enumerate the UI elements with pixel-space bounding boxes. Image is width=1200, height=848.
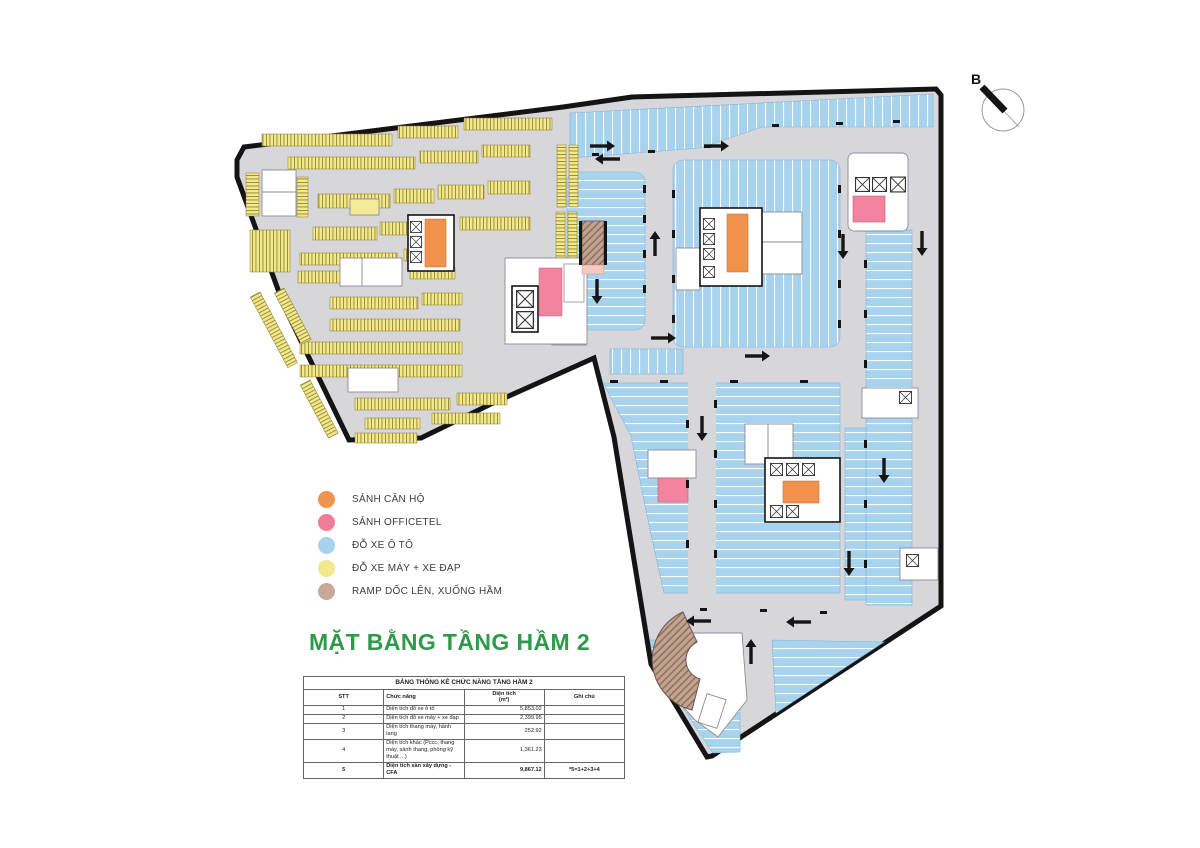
car-parking-zone <box>772 640 884 713</box>
officetel-lobby-swatch-icon <box>318 514 335 531</box>
legend-item-moto-parking: ĐỖ XE MÁY + XE ĐẠP <box>318 557 502 580</box>
col-header-stt: STT <box>304 690 384 706</box>
apartment-lobby-core-south <box>765 458 840 522</box>
elevator-icon <box>899 391 911 403</box>
table-row: 3 Diện tích thang máy, hành lang 252.92 <box>304 723 625 739</box>
col-header-function: Chức năng <box>384 690 464 706</box>
table-row: 2 Diện tích đỗ xe máy + xe đạp 2,399.95 <box>304 714 625 723</box>
legend-label: SẢNH OFFICETEL <box>352 517 442 528</box>
legend-label: RAMP DỐC LÊN, XUỐNG HẦM <box>352 586 502 597</box>
table-title: BẢNG THỐNG KÊ CHỨC NĂNG TẦNG HẦM 2 <box>304 677 625 690</box>
legend-item-car-parking: ĐỖ XE Ô TÔ <box>318 534 502 557</box>
elevator-icon <box>906 554 918 566</box>
officetel-lobby-core-west <box>505 258 587 344</box>
legend-item-ramp: RAMP DỐC LÊN, XUỐNG HẦM <box>318 580 502 603</box>
table-row: 4 Diện tích khác (Pccc, thang máy, sảnh … <box>304 739 625 762</box>
apartment-lobby-core-north <box>700 208 762 286</box>
car-parking-swatch-icon <box>318 537 335 554</box>
legend-label: ĐỖ XE Ô TÔ <box>352 540 413 551</box>
straight-ramp <box>579 221 607 274</box>
table-header-row: STT Chức năng Diện tích (m²) Ghi chú <box>304 690 625 706</box>
legend-item-officetel-lobby: SẢNH OFFICETEL <box>318 511 502 534</box>
apartment-lobby-core-west <box>408 215 454 271</box>
legend-item-apartment-lobby: SẢNH CĂN HỘ <box>318 488 502 511</box>
compass-north-label: B <box>971 71 981 87</box>
function-statistics-table: BẢNG THỐNG KÊ CHỨC NĂNG TẦNG HẦM 2 STT C… <box>303 676 625 779</box>
compass: B <box>971 71 1024 131</box>
driving-aisle <box>688 380 716 595</box>
officetel-lobby-south <box>658 478 688 502</box>
legend: SẢNH CĂN HỘ SẢNH OFFICETEL ĐỖ XE Ô TÔ ĐỖ… <box>318 488 502 603</box>
table-row-total: 5 Diện tích sàn xây dựng - CFA 9,867.12 … <box>304 762 625 778</box>
page-title: MẶT BẰNG TẦNG HẦM 2 <box>309 629 590 656</box>
moto-parking-swatch-icon <box>318 560 335 577</box>
car-parking-zone <box>610 349 683 374</box>
floor-plan-page: B SẢNH CĂN HỘ SẢNH OFFICETEL ĐỖ XE Ô TÔ … <box>0 0 1200 848</box>
legend-label: SẢNH CĂN HỘ <box>352 494 425 505</box>
table-title-row: BẢNG THỐNG KÊ CHỨC NĂNG TẦNG HẦM 2 <box>304 677 625 690</box>
col-header-note: Ghi chú <box>544 690 624 706</box>
legend-label: ĐỖ XE MÁY + XE ĐẠP <box>352 563 461 574</box>
apartment-lobby-swatch-icon <box>318 491 335 508</box>
col-header-area: Diện tích (m²) <box>464 690 544 706</box>
ramp-swatch-icon <box>318 583 335 600</box>
table-row: 1 Diện tích đỗ xe ô tô 5,853.02 <box>304 705 625 714</box>
